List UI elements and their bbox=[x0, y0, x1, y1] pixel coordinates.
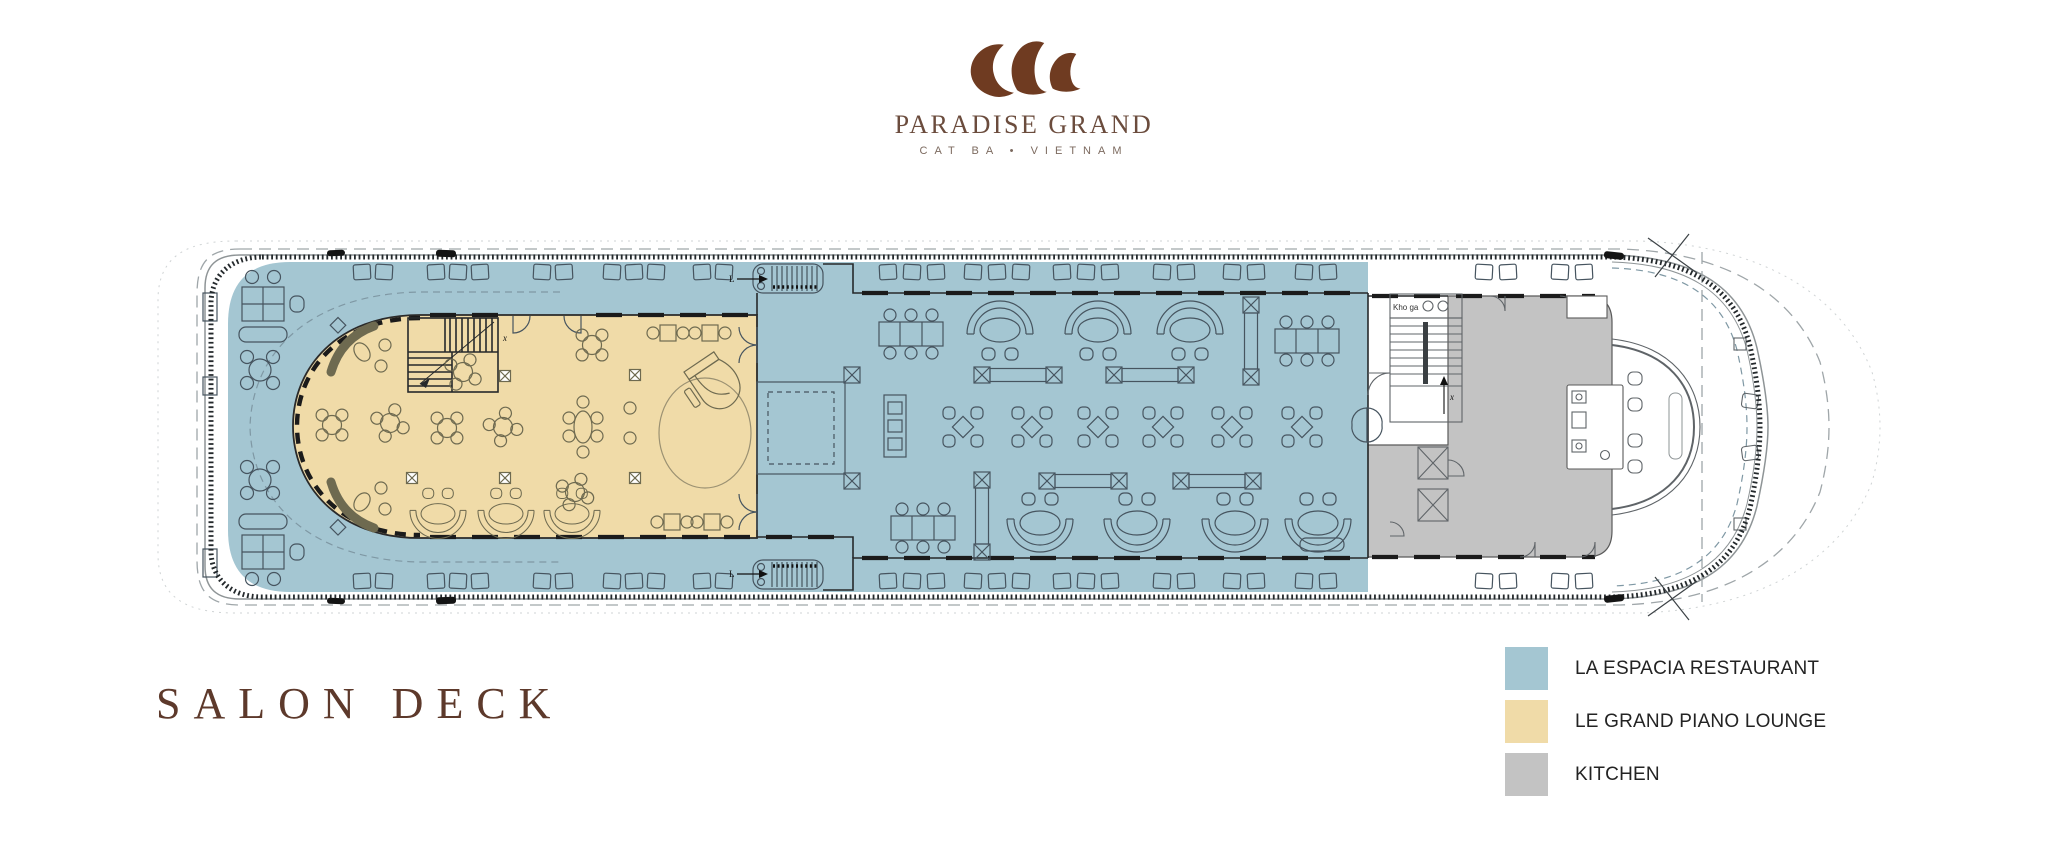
legend-swatch-kitchen bbox=[1505, 753, 1548, 796]
legend-label-restaurant: LA ESPACIA RESTAURANT bbox=[1575, 658, 1819, 680]
stairs-label-bottom: L bbox=[729, 569, 735, 579]
lounge-exit-label: x bbox=[502, 333, 507, 343]
legend-label-lounge: LE GRAND PIANO LOUNGE bbox=[1575, 711, 1826, 733]
legend-label-kitchen: KITCHEN bbox=[1575, 764, 1660, 786]
legend-item-restaurant: LA ESPACIA RESTAURANT bbox=[1505, 647, 1826, 690]
page-root: PARADISE GRAND CAT BA • VIETNAM bbox=[0, 0, 2048, 854]
brand-name: PARADISE GRAND bbox=[895, 110, 1154, 140]
wave-icon bbox=[965, 34, 1083, 106]
deck-title: SALON DECK bbox=[156, 678, 563, 729]
kitchen-store-label: Kho ga bbox=[1393, 303, 1419, 312]
legend-swatch-restaurant bbox=[1505, 647, 1548, 690]
legend: LA ESPACIA RESTAURANT LE GRAND PIANO LOU… bbox=[1505, 647, 1826, 806]
zone-lounge bbox=[293, 315, 757, 538]
stairs-label-top: L bbox=[729, 274, 735, 284]
legend-item-kitchen: KITCHEN bbox=[1505, 753, 1826, 796]
legend-swatch-lounge bbox=[1505, 700, 1548, 743]
stairwell-exit-label: x bbox=[1449, 392, 1454, 402]
legend-item-lounge: LE GRAND PIANO LOUNGE bbox=[1505, 700, 1826, 743]
brand-logo: PARADISE GRAND CAT BA • VIETNAM bbox=[0, 34, 2048, 157]
brand-location: CAT BA • VIETNAM bbox=[920, 145, 1129, 157]
